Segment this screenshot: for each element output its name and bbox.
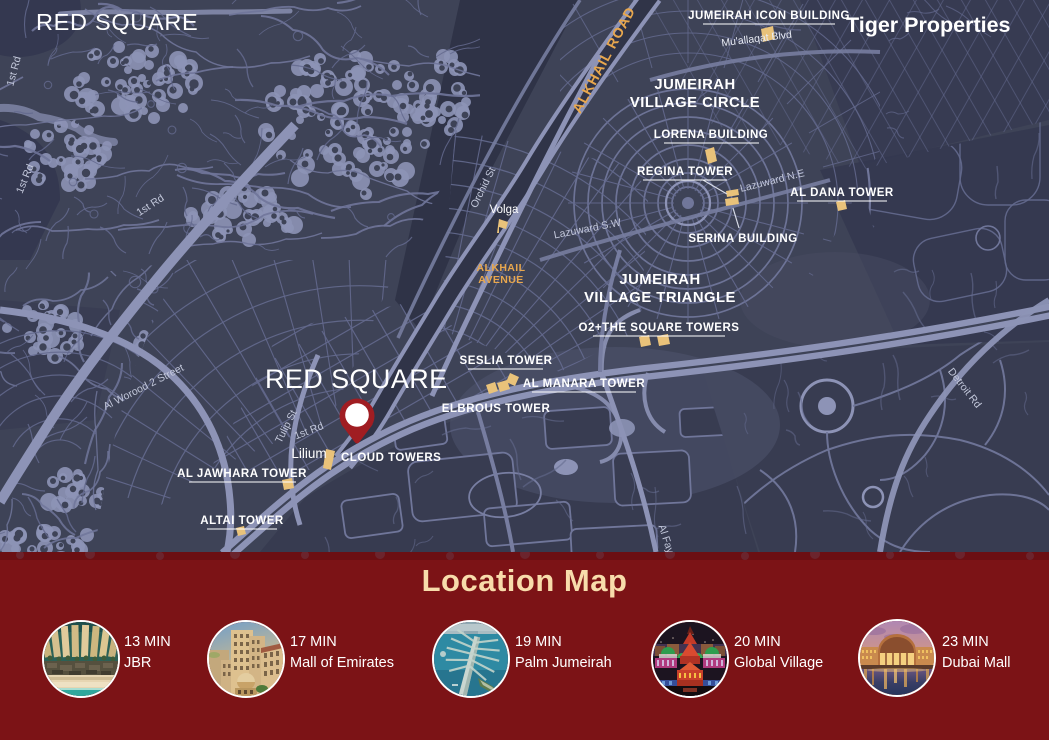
svg-text:LORENA BUILDING: LORENA BUILDING — [654, 129, 768, 141]
svg-text:JUMEIRAH: JUMEIRAH — [619, 272, 700, 288]
svg-text:AL MANARA TOWER: AL MANARA TOWER — [523, 378, 645, 390]
svg-text:ELBROUS TOWER: ELBROUS TOWER — [442, 403, 551, 415]
svg-text:O2+THE SQUARE TOWERS: O2+THE SQUARE TOWERS — [579, 322, 740, 334]
svg-text:ALKHAIL: ALKHAIL — [477, 262, 526, 274]
svg-text:AVENUE: AVENUE — [478, 274, 523, 286]
svg-text:JUMEIRAH ICON BUILDING: JUMEIRAH ICON BUILDING — [688, 10, 850, 22]
svg-text:RED SQUARE: RED SQUARE — [265, 364, 448, 394]
svg-text:ALTAI TOWER: ALTAI TOWER — [200, 515, 284, 527]
svg-text:VILLAGE TRIANGLE: VILLAGE TRIANGLE — [584, 290, 736, 306]
svg-text:REGINA TOWER: REGINA TOWER — [637, 166, 733, 178]
svg-text:JUMEIRAH: JUMEIRAH — [654, 77, 735, 93]
svg-text:VILLAGE CIRCLE: VILLAGE CIRCLE — [630, 95, 760, 111]
svg-text:SESLIA TOWER: SESLIA TOWER — [460, 355, 553, 367]
svg-text:SERINA BUILDING: SERINA BUILDING — [688, 233, 797, 245]
svg-text:Tiger Properties: Tiger Properties — [846, 13, 1011, 37]
svg-text:Lilium: Lilium — [291, 446, 326, 461]
svg-text:CLOUD TOWERS: CLOUD TOWERS — [341, 452, 441, 464]
svg-text:AL JAWHARA TOWER: AL JAWHARA TOWER — [177, 468, 307, 480]
svg-text:AL DANA TOWER: AL DANA TOWER — [790, 187, 894, 199]
svg-text:Volga: Volga — [490, 204, 519, 216]
svg-text:RED SQUARE: RED SQUARE — [36, 9, 198, 35]
